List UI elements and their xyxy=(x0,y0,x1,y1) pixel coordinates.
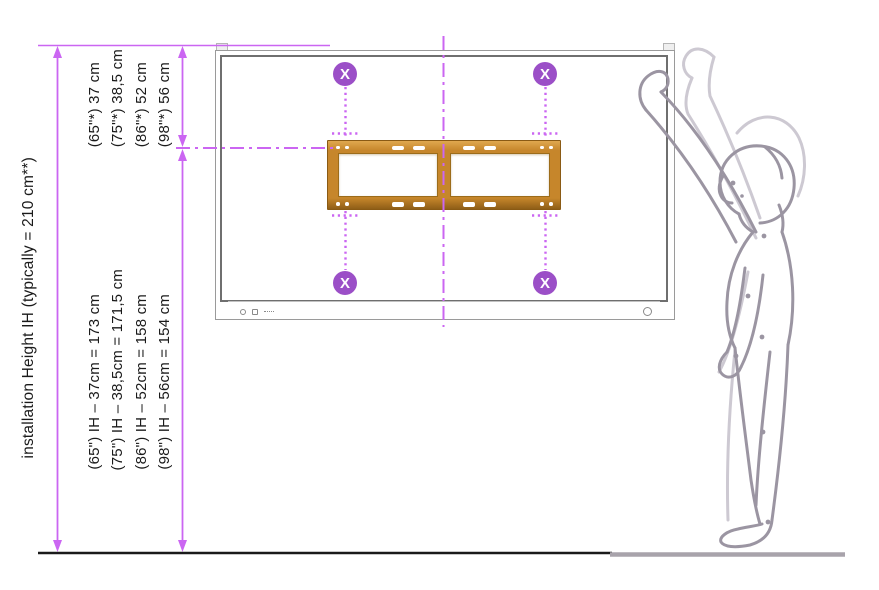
offset-label-65: (65"*) 37 cm xyxy=(84,62,106,147)
mount-height-label-98: (98") IH – 56cm = 154 cm xyxy=(154,294,176,470)
mount-height-label-65: (65") IH – 37cm = 173 cm xyxy=(84,294,106,470)
offset-label-75: (75"*) 38,5 cm xyxy=(107,49,129,147)
mount-height-label-75: (75") IH – 38,5cm = 171,5 cm xyxy=(107,269,129,470)
person-main-strokes xyxy=(640,71,794,546)
offset-label-86: (86"*) 52 cm xyxy=(131,62,153,147)
mount-height-label-86: (86") IH – 52cm = 158 cm xyxy=(131,294,153,470)
installation-height-diagram: X X X X xyxy=(0,0,879,590)
offset-label-98: (98"*) 56 cm xyxy=(154,62,176,147)
installation-height-label: installation Height IH (typically = 210 … xyxy=(17,157,40,458)
